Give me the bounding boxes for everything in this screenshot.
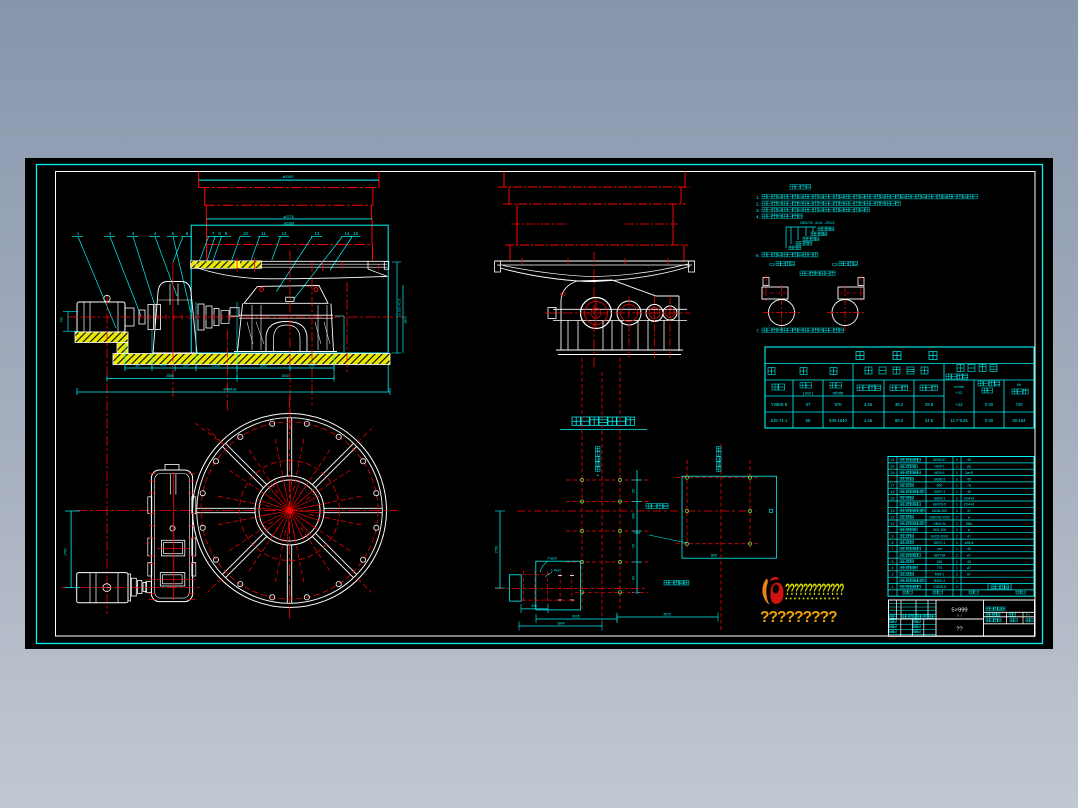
svg-text:45: 45 — [967, 458, 971, 462]
svg-text:n/min: n/min — [833, 391, 844, 396]
svg-text:25: 25 — [632, 489, 636, 493]
svg-text:n/min: n/min — [954, 384, 964, 389]
svg-text:38.2: 38.2 — [895, 402, 904, 407]
svg-text:2: 2 — [956, 554, 958, 558]
svg-text:ø3160: ø3160 — [283, 175, 294, 179]
svg-text:1.: 1. — [756, 195, 760, 200]
svg-text:45: 45 — [967, 477, 971, 481]
svg-text:GB93-87: GB93-87 — [933, 458, 947, 462]
svg-text:1750: 1750 — [495, 546, 499, 554]
svg-text:1: 1 — [956, 471, 958, 475]
svg-text:1540: 1540 — [281, 374, 289, 378]
svg-text:ø: ø — [968, 515, 970, 519]
svg-text:ZJ5-71-1: ZJ5-71-1 — [771, 418, 788, 423]
svg-text:2: 2 — [956, 477, 958, 481]
svg-text:3.45: 3.45 — [864, 402, 873, 407]
svg-text:80: 80 — [632, 576, 636, 580]
svg-text:600: 600 — [937, 484, 943, 488]
svg-text:2: 2 — [956, 458, 958, 462]
svg-text:45: 45 — [967, 490, 971, 494]
svg-text:ø: ø — [968, 528, 970, 532]
svg-text:GB95.5: GB95.5 — [934, 477, 946, 481]
svg-text:37: 37 — [806, 402, 811, 407]
svg-text:GB41-M: GB41-M — [933, 522, 946, 526]
svg-text:1-4×ø?: 1-4×ø? — [551, 569, 561, 573]
svg-text:2: 2 — [956, 515, 958, 519]
svg-text:M206-300: M206-300 — [932, 509, 947, 513]
svg-text:970: 970 — [835, 402, 843, 407]
svg-text:12: 12 — [282, 231, 287, 236]
svg-text:1: 1 — [956, 484, 958, 488]
svg-text:710: 710 — [60, 317, 64, 323]
svg-text:8: 8 — [892, 541, 894, 545]
svg-text:M20×1: M20×1 — [934, 471, 945, 475]
svg-text:387: 387 — [135, 364, 141, 368]
svg-text:Y280S-8: Y280S-8 — [771, 402, 788, 407]
svg-text:15: 15 — [353, 231, 358, 236]
svg-text:19: 19 — [891, 471, 895, 475]
svg-text:ø7: ø7 — [967, 554, 971, 558]
svg-text:1: 1 — [956, 503, 958, 507]
svg-text:720: 720 — [1016, 402, 1024, 407]
svg-text:M6a: M6a — [966, 522, 973, 526]
svg-text:9: 9 — [892, 535, 894, 539]
svg-text:1: 1 — [892, 585, 894, 589]
svg-text:2ø×8: 2ø×8 — [965, 471, 973, 475]
svg-text:4.: 4. — [756, 215, 760, 220]
svg-text:2580: 2580 — [166, 374, 174, 378]
svg-text:? : !: ? : ! — [957, 614, 962, 618]
svg-text:2: 2 — [956, 496, 958, 500]
svg-text:ZG4×6: ZG4×6 — [964, 496, 975, 500]
svg-text:GB175- 4×8- -2013: GB175- 4×8- -2013 — [800, 220, 835, 225]
svg-text:2.: 2. — [756, 202, 760, 207]
svg-text:xxx: xxx — [937, 547, 942, 551]
svg-text:GB5783-2000: GB5783-2000 — [929, 515, 950, 519]
svg-text:1: 1 — [956, 579, 958, 583]
svg-text:+1½: +1½ — [633, 531, 640, 535]
svg-text:13: 13 — [891, 509, 895, 513]
svg-text:9464±5: 9464±5 — [223, 387, 237, 392]
svg-text:380: 380 — [632, 513, 636, 519]
svg-text:ø2778: ø2778 — [283, 215, 293, 219]
svg-text:640: 640 — [309, 364, 315, 368]
svg-text:50-154: 50-154 — [1012, 418, 1026, 423]
svg-text:17: 17 — [891, 484, 895, 488]
svg-text:1: 1 — [956, 560, 958, 564]
svg-text:2: 2 — [956, 573, 958, 577]
svg-text:14: 14 — [345, 231, 350, 236]
svg-text:4: 4 — [892, 566, 894, 570]
svg-text:GB/T84: GB/T84 — [934, 554, 946, 558]
svg-text:HG5-7: HG5-7 — [935, 465, 945, 469]
svg-text:11.7-9.25: 11.7-9.25 — [950, 418, 968, 423]
svg-text:+12: +12 — [956, 390, 964, 395]
svg-text:C3: C3 — [769, 262, 775, 267]
svg-text:21: 21 — [891, 458, 895, 462]
svg-text:540-1540: 540-1540 — [829, 418, 847, 423]
svg-text:1: 1 — [956, 522, 958, 526]
svg-text:1: 1 — [956, 528, 958, 532]
svg-text:ZG4×6: ZG4×6 — [964, 503, 975, 507]
svg-text:0-30: 0-30 — [985, 418, 994, 423]
svg-text:7.: 7. — [756, 329, 760, 334]
svg-text:1.45: 1.45 — [864, 418, 873, 423]
svg-text:+12: +12 — [955, 402, 963, 407]
svg-text:16: 16 — [891, 490, 895, 494]
svg-text:1: 1 — [956, 541, 958, 545]
svg-text:GB97.2: GB97.2 — [934, 490, 946, 494]
svg-text:30: 30 — [632, 544, 636, 548]
svg-text:øa: øa — [967, 465, 971, 469]
svg-text:( kW ): ( kW ) — [803, 391, 814, 396]
svg-text:▲: ▲ — [597, 473, 600, 477]
svg-text:11: 11 — [261, 231, 266, 236]
svg-text:·: · — [892, 591, 893, 595]
svg-text:6005: 6005 — [572, 615, 580, 619]
svg-text:3840: 3840 — [557, 622, 565, 626]
svg-text:??: ?? — [956, 627, 963, 633]
svg-text:1: 1 — [956, 547, 958, 551]
svg-text:?????????: ????????? — [760, 609, 837, 626]
svg-text:1840: 1840 — [259, 364, 267, 368]
svg-text:4?: 4? — [967, 509, 971, 513]
svg-text:520: 520 — [183, 364, 189, 368]
svg-text:1: 1 — [956, 509, 958, 513]
svg-text:M95-1: M95-1 — [935, 573, 945, 577]
svg-text:800: 800 — [711, 554, 717, 558]
svg-text:45: 45 — [967, 547, 971, 551]
svg-text:45: 45 — [967, 560, 971, 564]
svg-text:3: 3 — [892, 573, 894, 577]
svg-text:Y280S-8: Y280S-8 — [933, 585, 946, 589]
svg-text:ø35-8: ø35-8 — [965, 541, 974, 545]
svg-text:11: 11 — [891, 522, 895, 526]
svg-text:5: 5 — [892, 560, 894, 564]
svg-text:GB93-1: GB93-1 — [934, 496, 946, 500]
svg-text:GB703-5: GB703-5 — [933, 503, 947, 507]
svg-text:2: 2 — [956, 535, 958, 539]
svg-text:1750: 1750 — [64, 548, 68, 556]
svg-text:55: 55 — [806, 418, 811, 423]
svg-text:29.8: 29.8 — [925, 402, 934, 407]
svg-text:8?: 8? — [967, 573, 971, 577]
svg-text:1: 1 — [956, 566, 958, 570]
svg-text:1: 1 — [956, 585, 958, 589]
svg-text:10: 10 — [243, 231, 248, 236]
svg-text:20: 20 — [891, 465, 895, 469]
svg-text:±0.000 +0.5: ±0.000 +0.5 — [398, 299, 402, 317]
svg-text:5×999: 5×999 — [951, 608, 967, 614]
svg-text:245: 245 — [937, 560, 943, 564]
svg-text:7: 7 — [892, 547, 894, 551]
svg-text:2130: 2130 — [212, 364, 220, 368]
svg-text:t/h: t/h — [1017, 382, 1021, 387]
svg-text:M205-2000: M205-2000 — [931, 535, 948, 539]
svg-text:F×: F× — [1026, 613, 1030, 617]
svg-text:GB1-300: GB1-300 — [933, 528, 947, 532]
svg-text:7ø: 7ø — [967, 484, 971, 488]
svg-text:1: 1 — [956, 490, 958, 494]
svg-text:C3: C3 — [832, 262, 838, 267]
svg-text:0-30: 0-30 — [985, 402, 994, 407]
svg-text:13: 13 — [315, 231, 320, 236]
svg-text:3.: 3. — [756, 208, 760, 213]
svg-text:12: 12 — [891, 515, 895, 519]
svg-text:GB70-1: GB70-1 — [934, 541, 946, 545]
svg-text:15: 15 — [891, 496, 895, 500]
svg-text:4?: 4? — [967, 535, 971, 539]
svg-text:?????????????: ????????????? — [785, 580, 844, 599]
svg-text:6.: 6. — [756, 253, 760, 258]
svg-text:7×ø20: 7×ø20 — [547, 557, 557, 561]
svg-text:24.5: 24.5 — [925, 418, 934, 423]
svg-text:1: 1 — [956, 465, 958, 469]
svg-text:·: · — [956, 591, 957, 595]
svg-text:ø7: ø7 — [967, 566, 971, 570]
svg-text:4575: 4575 — [663, 613, 671, 617]
svg-text:470: 470 — [160, 364, 166, 368]
svg-text:B350-4: B350-4 — [934, 579, 945, 583]
svg-text:69.2: 69.2 — [895, 418, 904, 423]
svg-text:770: 770 — [937, 566, 943, 570]
svg-text:330: 330 — [531, 604, 537, 608]
svg-text:1600: 1600 — [404, 316, 408, 324]
